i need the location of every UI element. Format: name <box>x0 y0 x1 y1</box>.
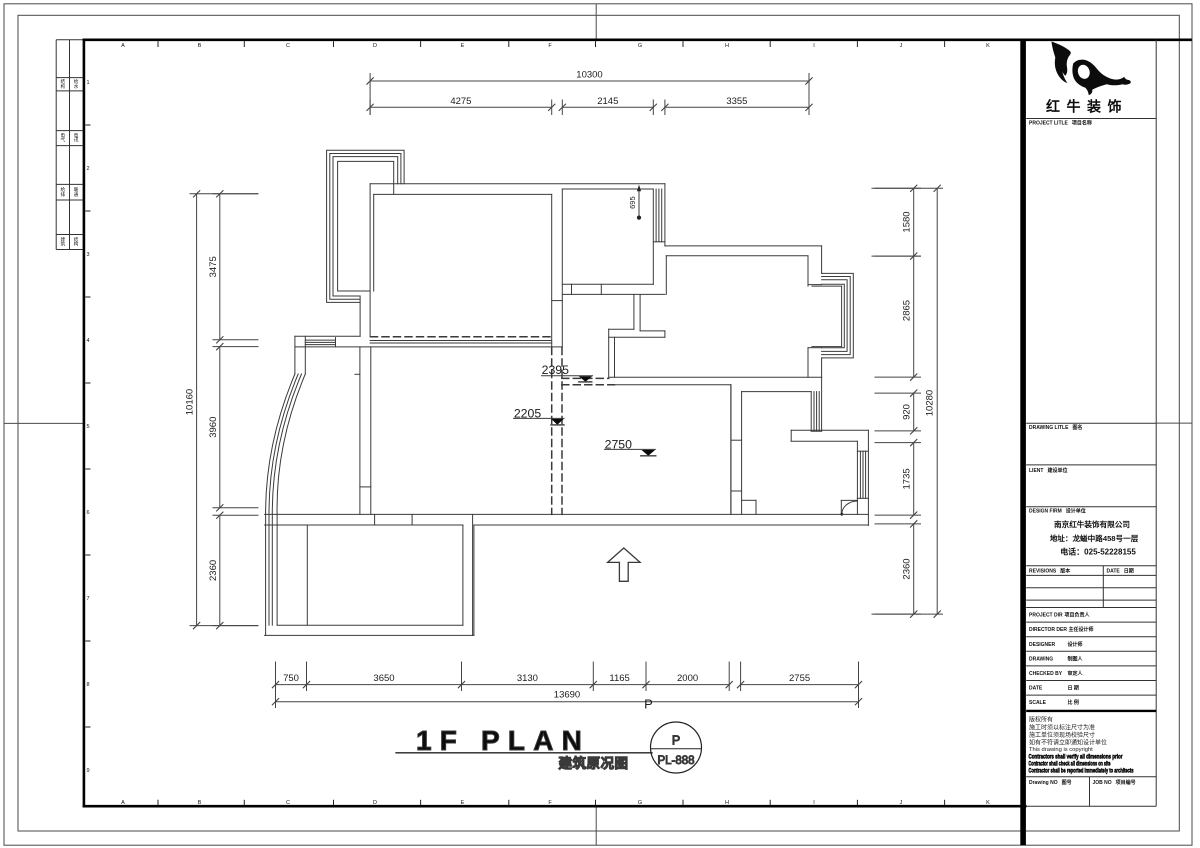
svg-text:Drawing NO图号: Drawing NO图号 <box>1029 779 1072 786</box>
svg-text:施工单位须现场校验尺寸: 施工单位须现场校验尺寸 <box>1029 731 1095 739</box>
svg-text:H: H <box>725 43 729 49</box>
svg-text:日 期: 日 期 <box>1068 685 1079 692</box>
svg-text:PROJECT LITLE项目名称: PROJECT LITLE项目名称 <box>1029 120 1092 127</box>
svg-text:CHECKED BY: CHECKED BY <box>1029 671 1063 677</box>
svg-text:讯: 讯 <box>74 137 79 144</box>
svg-text:3475: 3475 <box>208 256 219 277</box>
svg-text:主任设计师: 主任设计师 <box>1069 626 1094 633</box>
svg-text:5: 5 <box>86 424 89 430</box>
svg-text:3650: 3650 <box>373 673 394 684</box>
svg-text:比 例: 比 例 <box>1068 699 1079 706</box>
svg-text:G: G <box>638 43 642 49</box>
svg-text:K: K <box>986 43 990 49</box>
svg-text:A: A <box>121 43 125 49</box>
svg-text:项目负责人: 项目负责人 <box>1065 612 1091 619</box>
svg-text:如有不符请立即通知设计单位: 如有不符请立即通知设计单位 <box>1029 739 1107 747</box>
svg-text:1165: 1165 <box>609 673 629 684</box>
svg-text:K: K <box>986 800 990 806</box>
svg-text:3130: 3130 <box>517 673 538 684</box>
svg-text:G: G <box>638 800 642 806</box>
svg-text:695: 695 <box>628 196 637 209</box>
svg-text:B: B <box>198 43 202 49</box>
svg-text:10280: 10280 <box>925 390 936 416</box>
svg-text:750: 750 <box>283 673 299 684</box>
svg-text:4275: 4275 <box>450 96 471 107</box>
svg-text:水: 水 <box>74 83 79 89</box>
svg-text:SCALE: SCALE <box>1029 700 1047 706</box>
svg-text:C: C <box>286 800 290 806</box>
svg-text:2755: 2755 <box>789 673 810 684</box>
svg-text:2: 2 <box>86 166 89 172</box>
svg-text:2360: 2360 <box>208 560 219 581</box>
svg-text:1580: 1580 <box>901 211 912 232</box>
svg-text:10160: 10160 <box>184 389 195 415</box>
svg-text:8: 8 <box>86 682 89 688</box>
svg-text:1735: 1735 <box>901 468 912 489</box>
svg-text:设计师: 设计师 <box>1068 641 1083 648</box>
svg-text:版权所有: 版权所有 <box>1029 716 1053 724</box>
svg-text:1F PLAN: 1F PLAN <box>416 725 590 756</box>
svg-text:H: H <box>725 800 729 806</box>
svg-text:D: D <box>373 43 377 49</box>
svg-text:DIRECTOR DER: DIRECTOR DER <box>1029 627 1067 633</box>
svg-text:2000: 2000 <box>677 673 698 684</box>
svg-text:J: J <box>900 800 903 806</box>
svg-text:LIENT建设单位: LIENT建设单位 <box>1029 467 1067 474</box>
svg-text:920: 920 <box>901 404 912 420</box>
svg-text:2865: 2865 <box>901 300 912 321</box>
svg-text:2395: 2395 <box>542 363 570 377</box>
svg-text:7: 7 <box>86 596 89 602</box>
svg-text:3: 3 <box>86 252 89 258</box>
svg-text:气: 气 <box>60 137 65 143</box>
svg-text:DATE: DATE <box>1029 686 1043 692</box>
svg-text:4: 4 <box>86 338 89 344</box>
svg-text:B: B <box>198 800 202 806</box>
svg-text:2145: 2145 <box>597 96 618 107</box>
svg-text:This drawing is copyright: This drawing is copyright <box>1029 747 1093 753</box>
svg-text:构: 构 <box>60 83 65 90</box>
svg-text:PROJECT DIR: PROJECT DIR <box>1029 613 1063 619</box>
svg-text:DRAWING: DRAWING <box>1029 656 1053 662</box>
svg-text:审定人: 审定人 <box>1068 670 1084 677</box>
svg-text:建筑原况图: 建筑原况图 <box>558 755 629 771</box>
svg-text:E: E <box>461 43 465 49</box>
svg-text:DESIGNER: DESIGNER <box>1029 642 1056 648</box>
svg-text:DESIGN FIRM设计单位: DESIGN FIRM设计单位 <box>1029 508 1086 515</box>
svg-text:构: 构 <box>74 241 79 248</box>
svg-text:A: A <box>121 800 125 806</box>
svg-text:排: 排 <box>60 191 65 198</box>
svg-text:3355: 3355 <box>726 96 747 107</box>
svg-text:3960: 3960 <box>208 417 219 438</box>
svg-text:13690: 13690 <box>554 690 580 701</box>
svg-text:通: 通 <box>74 191 79 198</box>
svg-text:REVISIONS版本: REVISIONS版本 <box>1029 567 1071 574</box>
svg-text:1: 1 <box>86 80 89 86</box>
svg-text:DRAWING LITLE图名: DRAWING LITLE图名 <box>1029 424 1082 431</box>
svg-text:筑: 筑 <box>60 241 65 248</box>
svg-text:施工时须以标注尺寸为准: 施工时须以标注尺寸为准 <box>1029 724 1095 732</box>
svg-text:红牛装饰: 红牛装饰 <box>1046 99 1128 115</box>
svg-text:制图人: 制图人 <box>1068 655 1084 662</box>
svg-text:Contractor shall be reported i: Contractor shall be reported immediately… <box>1029 769 1134 775</box>
svg-text:P: P <box>672 734 680 748</box>
svg-text:Contractors shall verify all d: Contractors shall verify all dimensions … <box>1029 755 1123 761</box>
svg-text:PL-888: PL-888 <box>657 755 694 767</box>
svg-text:C: C <box>286 43 290 49</box>
svg-text:南京红牛装饰有限公司: 南京红牛装饰有限公司 <box>1054 519 1130 529</box>
svg-text:P: P <box>644 697 653 712</box>
svg-text:电话：025-52228155: 电话：025-52228155 <box>1060 547 1136 557</box>
svg-text:2360: 2360 <box>901 558 912 579</box>
svg-text:E: E <box>461 800 465 806</box>
svg-text:10300: 10300 <box>576 70 602 81</box>
svg-text:6: 6 <box>86 510 89 516</box>
svg-text:地址：龙螠中路458号一层: 地址：龙螠中路458号一层 <box>1050 533 1139 543</box>
svg-text:D: D <box>373 800 377 806</box>
svg-text:J: J <box>900 43 903 49</box>
svg-text:9: 9 <box>86 768 89 774</box>
svg-text:Contractor shall check all dim: Contractor shall check all dimensions on… <box>1029 762 1111 768</box>
